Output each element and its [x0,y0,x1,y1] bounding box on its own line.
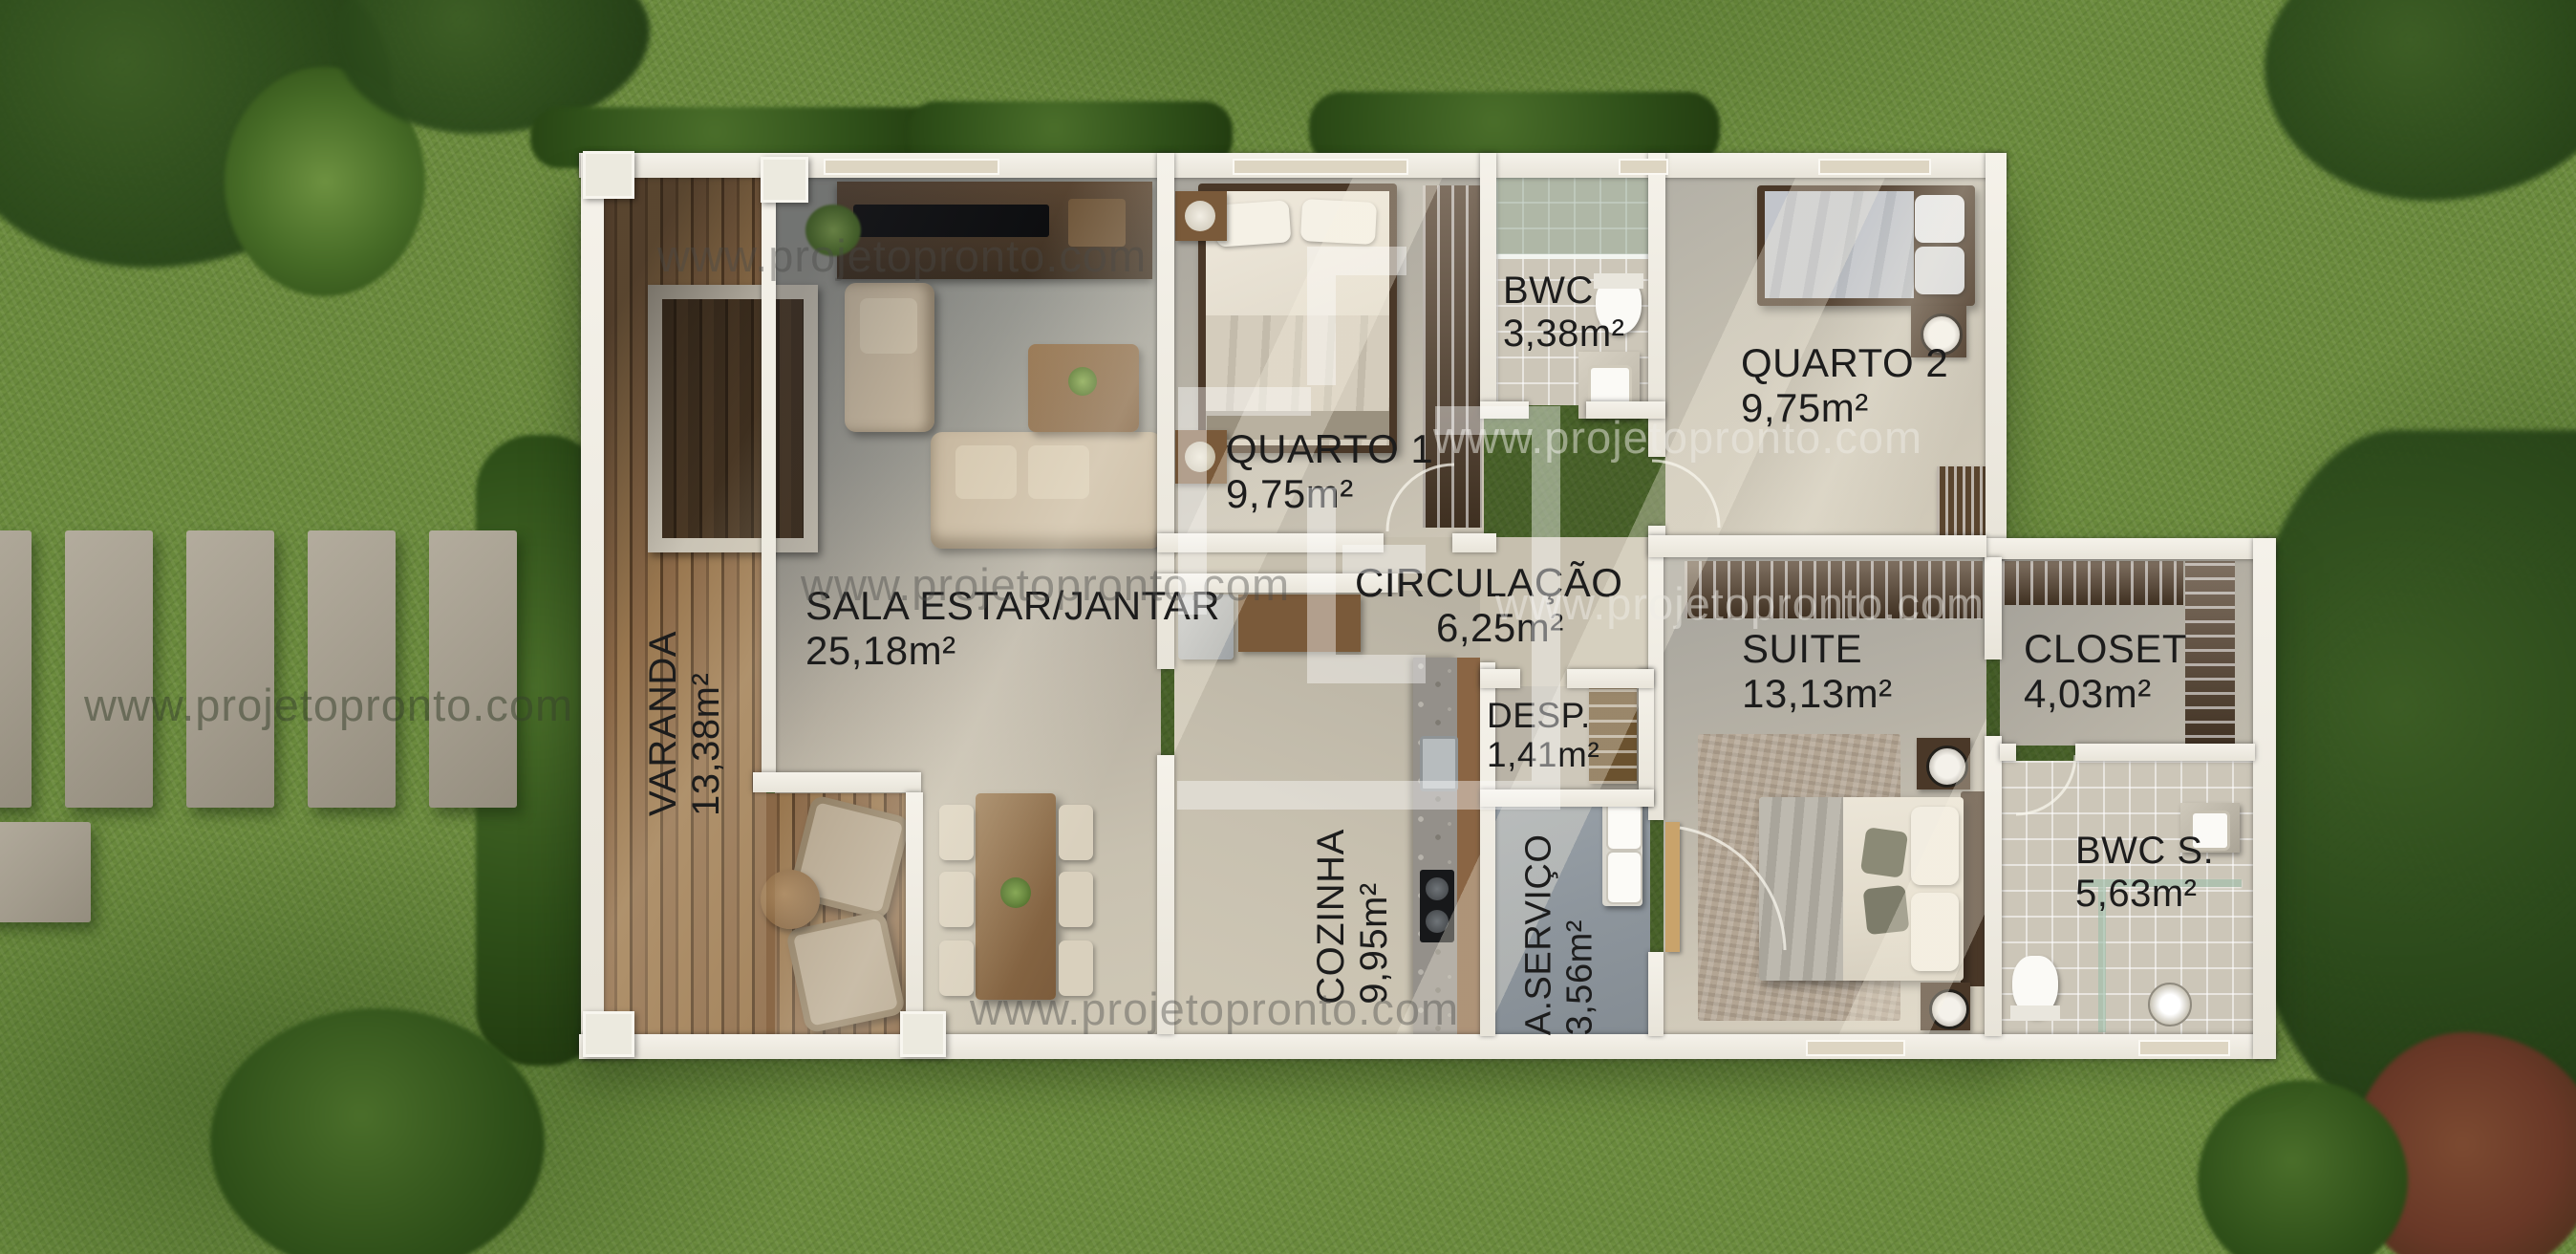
wall-suite-bwcs [1985,736,2002,1036]
window-quarto2 [1818,159,1931,175]
room-area: 4,03m² [2024,671,2187,716]
deck-pillar [583,1011,634,1057]
room-area: 3,56m² [1559,834,1600,1036]
wall-deck-lower-right [906,792,923,1036]
room-label-bwcs: BWC S. 5,63m² [2075,830,2214,916]
room-area: 5,63m² [2075,873,2214,916]
window-sala [824,159,999,175]
floorplan-render: VARANDA 13,38m² SALA ESTAR/JANTAR 25,18m… [0,0,2576,1254]
room-name: QUARTO 2 [1741,340,1948,385]
wall-wing-top [1986,538,2276,559]
window-suite [1806,1040,1905,1056]
room-area: 13,38m² [685,631,728,816]
room-name: CLOSET [2024,626,2187,671]
wall-wing-right [2253,538,2276,1059]
deck-pillar [900,1011,946,1057]
wall-suite-closet [1985,557,2002,659]
deck-pillar [761,157,808,203]
wall-outer-bottom [579,1034,2276,1059]
room-label-suite: SUITE 13,13m² [1742,626,1893,716]
window-quarto1 [1233,159,1408,175]
room-name: VARANDA [642,631,685,816]
wall-outer-right-upper [1986,153,2007,559]
wall-closet-bwcs-left [2000,744,2016,761]
watermark-text: www.projetopronto.com [657,229,1147,282]
window-bwcs [2138,1040,2230,1056]
wall-aserv-suite-lower [1648,952,1664,1036]
wall-desp-right [1639,669,1654,807]
room-name: A.SERVIÇO [1518,834,1559,1036]
room-label-closet: CLOSET 4,03m² [2024,626,2187,716]
watermark-text: www.projetopronto.com [84,679,573,731]
window-bwc [1619,159,1668,175]
wall-closet-bwcs-right [2075,744,2255,761]
deck-pillar [583,151,634,199]
logo-watermark-icon [1118,244,1596,855]
wall-deck-lower-top [753,772,921,792]
room-area: 13,13m² [1742,671,1893,716]
wall-outer-left [581,153,604,1059]
wall-quarto2-bottom [1648,535,1986,557]
room-label-varanda: VARANDA 13,38m² [642,631,728,816]
room-name: SUITE [1742,626,1893,671]
watermark-text: www.projetopronto.com [970,983,1459,1035]
room-name: BWC S. [2075,830,2214,873]
room-label-aservico: A.SERVIÇO 3,56m² [1518,834,1599,1036]
